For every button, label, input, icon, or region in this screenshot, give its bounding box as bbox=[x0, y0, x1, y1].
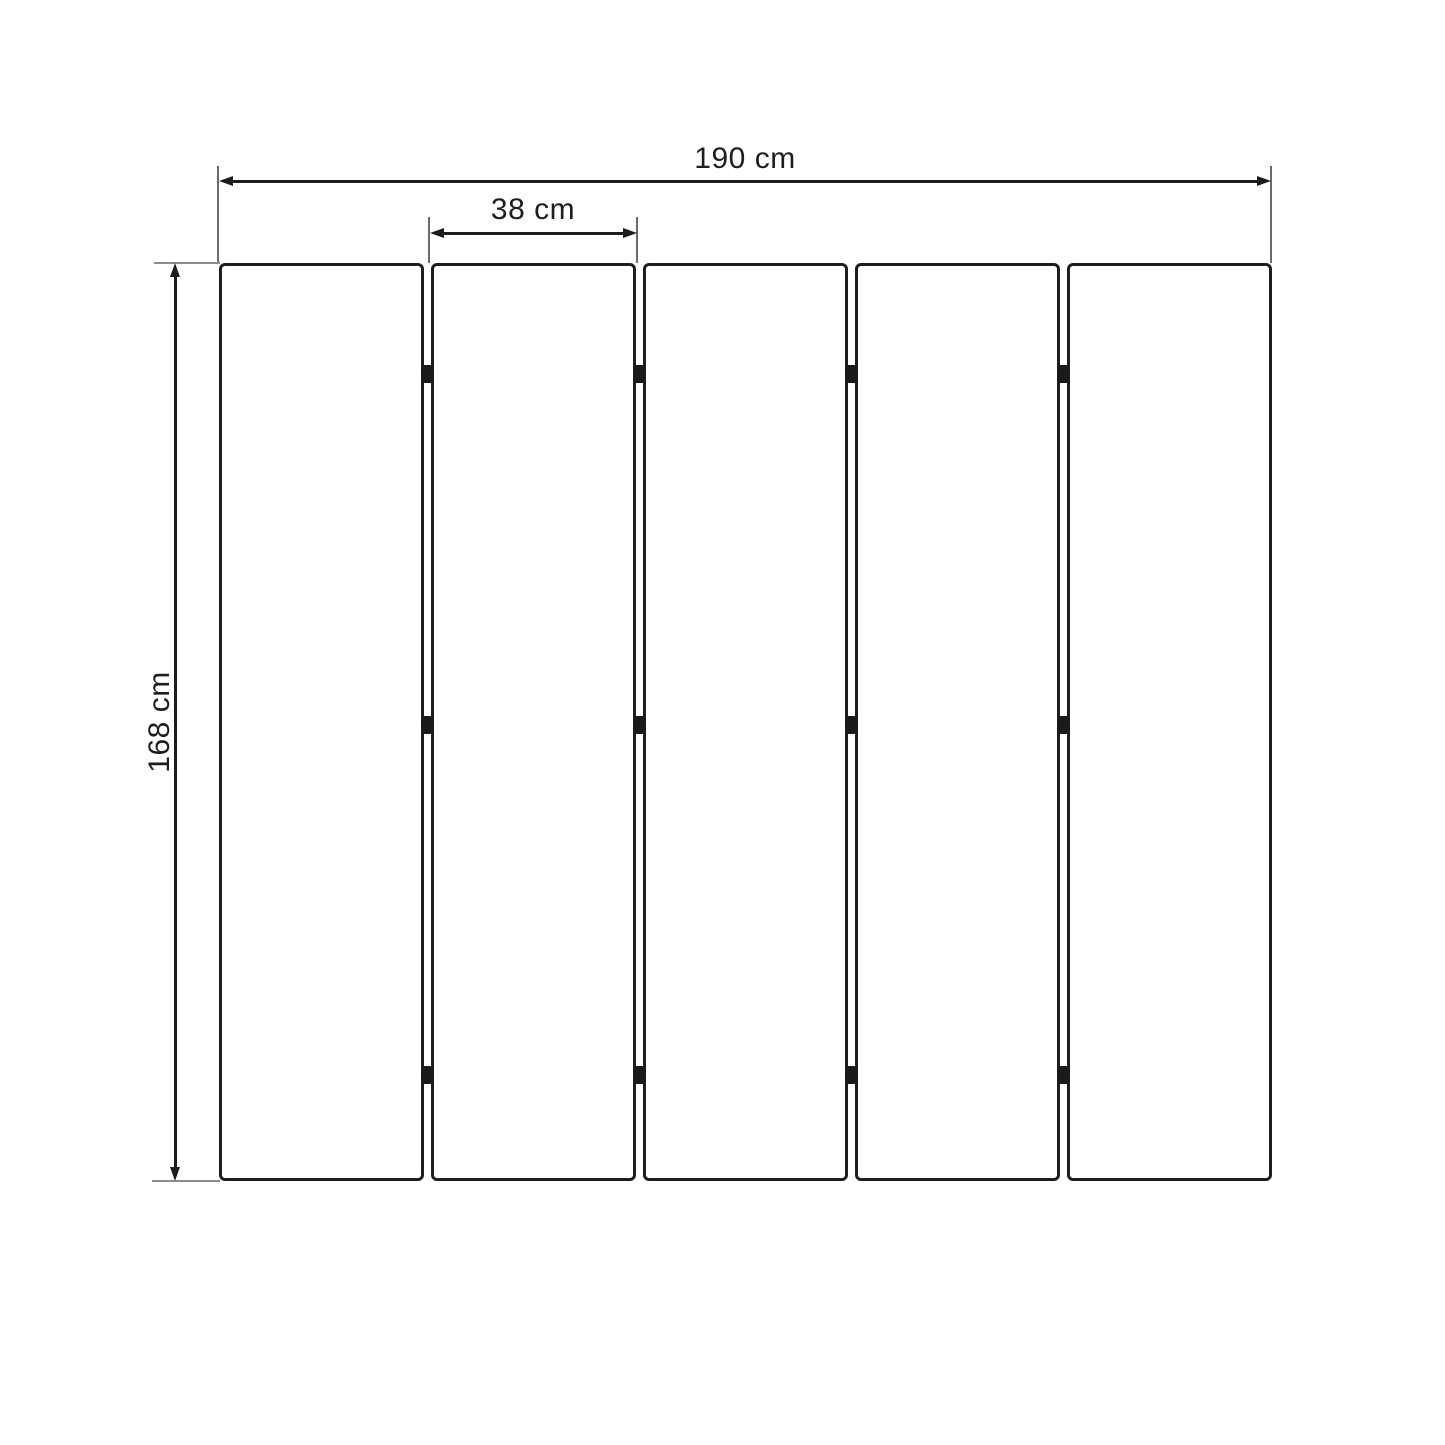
dimension-line bbox=[232, 180, 1258, 183]
panel-5 bbox=[1067, 263, 1272, 1181]
dimension-diagram: 190 cm 38 cm 168 cm bbox=[0, 0, 1445, 1445]
panel-3 bbox=[643, 263, 848, 1181]
hinge-mark bbox=[845, 716, 858, 734]
total-height-label: 168 cm bbox=[143, 671, 177, 772]
extension-line-right bbox=[636, 217, 638, 263]
hinge-mark bbox=[633, 716, 646, 734]
panel-2 bbox=[431, 263, 636, 1181]
arrow-left-icon bbox=[219, 176, 233, 186]
hinge-mark bbox=[1057, 365, 1070, 383]
extension-line-top bbox=[154, 262, 220, 264]
dimension-line bbox=[442, 232, 625, 235]
panel-width-label: 38 cm bbox=[491, 193, 575, 227]
hinge-mark bbox=[421, 1066, 434, 1084]
hinge-mark bbox=[421, 716, 434, 734]
panel-4 bbox=[855, 263, 1060, 1181]
hinge-mark bbox=[633, 365, 646, 383]
total-width-label: 190 cm bbox=[694, 142, 795, 176]
panel-1 bbox=[219, 263, 424, 1181]
hinge-mark bbox=[1057, 716, 1070, 734]
hinge-mark bbox=[845, 365, 858, 383]
hinge-mark bbox=[421, 365, 434, 383]
hinge-mark bbox=[633, 1066, 646, 1084]
arrow-right-icon bbox=[1257, 176, 1271, 186]
arrow-right-icon bbox=[623, 228, 637, 238]
hinge-mark bbox=[845, 1066, 858, 1084]
hinge-mark bbox=[1057, 1066, 1070, 1084]
extension-line-left bbox=[428, 217, 430, 263]
extension-line-bottom bbox=[152, 1180, 220, 1182]
